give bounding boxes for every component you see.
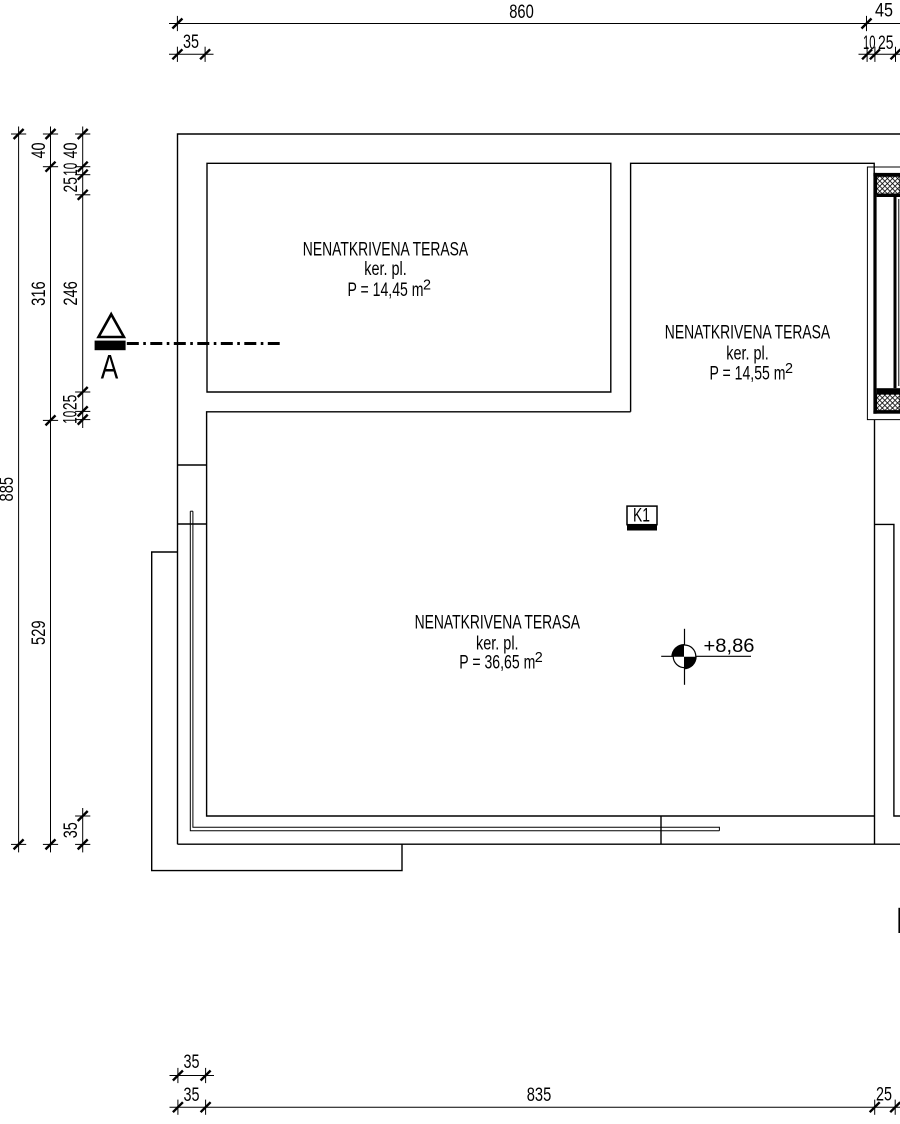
svg-text:40: 40: [61, 143, 82, 159]
svg-text:25: 25: [878, 33, 894, 54]
svg-text:35: 35: [184, 1052, 200, 1073]
svg-text:10: 10: [61, 163, 82, 176]
svg-text:529: 529: [29, 620, 50, 645]
svg-text:35: 35: [183, 32, 199, 53]
svg-text:ker. pl.: ker. pl.: [476, 634, 519, 655]
svg-text:10: 10: [863, 33, 876, 54]
svg-text:25: 25: [61, 177, 82, 193]
svg-text:885: 885: [0, 477, 18, 502]
svg-text:2: 2: [535, 649, 543, 666]
svg-text:25: 25: [876, 1085, 892, 1106]
svg-text:835: 835: [527, 1085, 552, 1106]
svg-text:35: 35: [61, 822, 82, 838]
svg-text:NENATKRIVENA TERASA: NENATKRIVENA TERASA: [303, 240, 469, 261]
svg-text:316: 316: [29, 281, 50, 306]
svg-text:P = 36,65 m: P = 36,65 m: [459, 653, 535, 674]
svg-text:K1: K1: [633, 505, 650, 526]
svg-text:ker. pl.: ker. pl.: [726, 343, 769, 364]
svg-text:NENATKRIVENA TERASA: NENATKRIVENA TERASA: [415, 613, 581, 634]
svg-text:10: 10: [60, 411, 81, 424]
svg-text:246: 246: [61, 281, 82, 306]
svg-text:NENATKRIVENA TERASA: NENATKRIVENA TERASA: [665, 323, 831, 344]
svg-text:860: 860: [509, 2, 534, 23]
svg-text:2: 2: [423, 277, 431, 294]
svg-text:35: 35: [184, 1085, 200, 1106]
svg-text:A: A: [101, 349, 119, 387]
svg-text:25: 25: [60, 395, 81, 411]
svg-text:P = 14,45 m: P = 14,45 m: [348, 280, 424, 301]
svg-text:45: 45: [875, 1, 893, 22]
svg-text:ker. pl.: ker. pl.: [364, 259, 407, 280]
svg-text:P = 14,55 m: P = 14,55 m: [710, 363, 786, 384]
svg-text:40: 40: [29, 143, 50, 159]
svg-text:+8,86: +8,86: [704, 636, 755, 657]
svg-text:2: 2: [785, 360, 793, 377]
